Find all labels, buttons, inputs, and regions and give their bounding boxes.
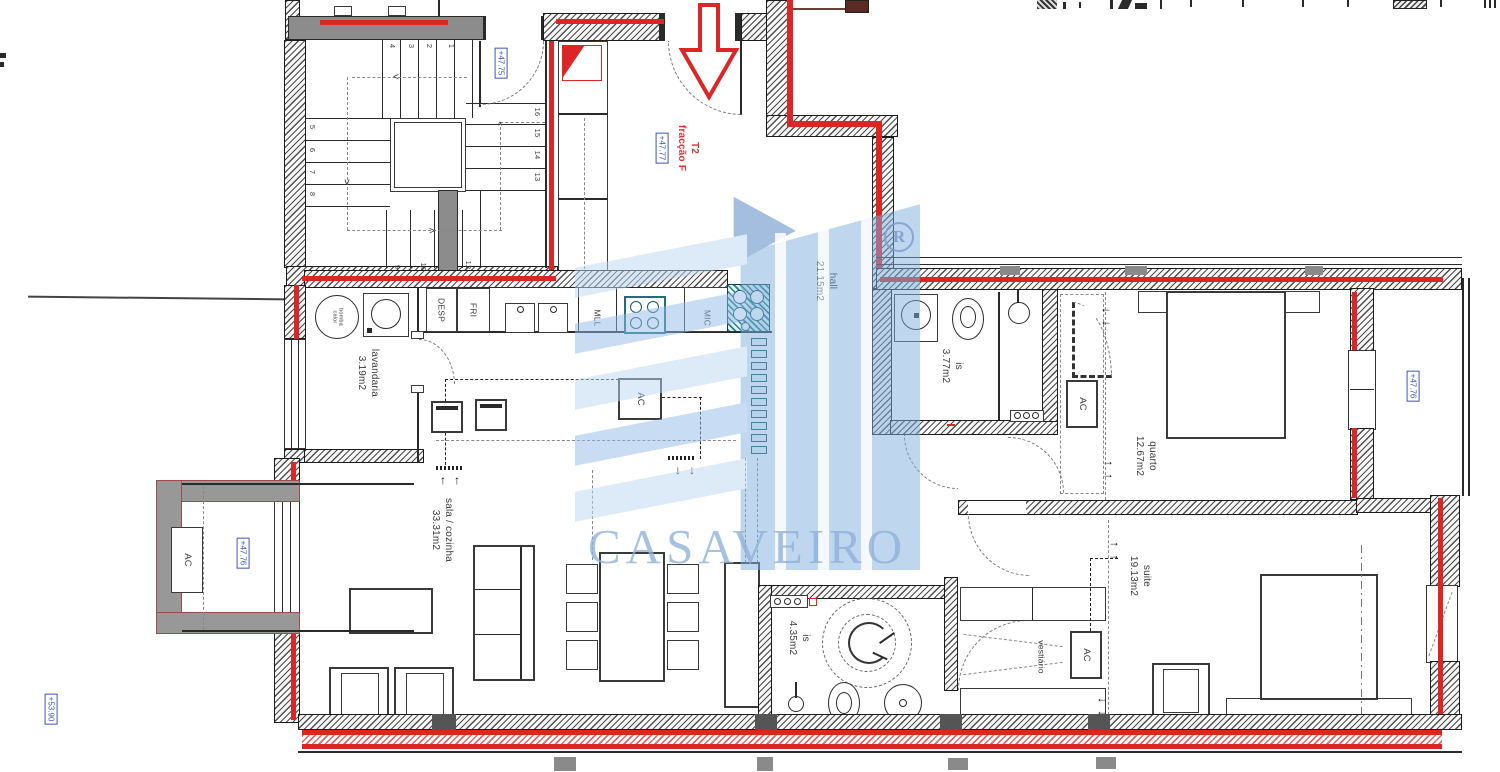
stair-tread bbox=[466, 103, 545, 104]
cut-fragment bbox=[1242, 0, 1244, 7]
shaft-symbol bbox=[562, 45, 602, 81]
sofa bbox=[473, 545, 535, 681]
level-marker: +47.76 bbox=[236, 538, 249, 569]
duct-red bbox=[787, 121, 882, 127]
cabinet-line bbox=[616, 288, 617, 332]
room-label-suite: suite19.13m2 bbox=[1127, 556, 1153, 596]
airflow-arrow-icon: ← bbox=[1100, 302, 1112, 314]
terrace-railing bbox=[1468, 278, 1470, 496]
kitchen-island bbox=[724, 562, 760, 708]
rack-slot bbox=[751, 410, 767, 418]
cut-fragment bbox=[793, 8, 847, 10]
ac-diffuser bbox=[436, 466, 462, 470]
washing-machine-dot bbox=[367, 328, 372, 333]
toilet-bowl-icon bbox=[960, 306, 976, 328]
door-swing-arc bbox=[958, 620, 1028, 690]
duct-red bbox=[291, 626, 296, 720]
step-number: 6 bbox=[307, 148, 317, 152]
stair-tread bbox=[466, 124, 545, 125]
rail-dot-icon bbox=[1032, 412, 1039, 419]
cut-fragment bbox=[1484, 0, 1486, 8]
stair-tread bbox=[306, 140, 390, 141]
duct-red bbox=[880, 277, 1443, 282]
cut-fragment bbox=[1302, 0, 1304, 7]
wall-divider bbox=[417, 390, 419, 463]
cut-fragment bbox=[1494, 0, 1496, 8]
closet-shelf-line bbox=[558, 113, 608, 115]
dishwasher-label: MLL bbox=[591, 309, 602, 326]
closet-shelf-line bbox=[558, 198, 608, 200]
ac-duct-line bbox=[700, 397, 701, 459]
step-number: 7 bbox=[307, 170, 317, 174]
armchair-cushion bbox=[406, 673, 444, 717]
rack-slot bbox=[751, 374, 767, 382]
duct-red bbox=[1352, 428, 1357, 498]
stair-direction-icon: ^ bbox=[498, 122, 503, 132]
dining-chair bbox=[566, 564, 598, 594]
duct-red bbox=[320, 20, 448, 25]
room-label-lavandaria: lavandaria3.19m2 bbox=[355, 349, 381, 397]
wall-tick bbox=[432, 714, 456, 730]
wall-tick bbox=[1088, 714, 1110, 730]
door-swing-arc bbox=[1008, 437, 1064, 493]
wall-tick bbox=[1000, 266, 1020, 275]
stair-tread bbox=[454, 40, 455, 118]
room-label-is1: is3.77m2 bbox=[939, 349, 965, 384]
cut-fragment bbox=[1135, 3, 1147, 9]
rail-dot-icon bbox=[1023, 412, 1030, 419]
step-number: 5 bbox=[307, 125, 317, 129]
cut-fragment bbox=[948, 758, 968, 770]
stair-tread bbox=[436, 40, 437, 118]
cut-fragment bbox=[1160, 0, 1162, 9]
slab-edge-line bbox=[876, 257, 1462, 258]
hob bbox=[624, 296, 666, 334]
stair-landing-inner bbox=[394, 122, 462, 188]
ac-label: AC bbox=[1076, 397, 1088, 411]
door-opening bbox=[968, 501, 1026, 514]
armchair-cushion bbox=[1163, 669, 1199, 713]
stair-direction-icon: > bbox=[429, 227, 435, 237]
dining-chair bbox=[667, 640, 699, 670]
upper-room-line bbox=[438, 0, 440, 16]
wall-stub bbox=[438, 190, 458, 274]
rack-slot bbox=[751, 350, 767, 358]
shaft-triangle-icon bbox=[563, 46, 601, 80]
rack-slot bbox=[751, 398, 767, 406]
room-label-vestiario: vestiário bbox=[1035, 640, 1046, 673]
wall-bath2-right bbox=[944, 577, 958, 691]
duct-red bbox=[302, 744, 1442, 749]
rack-slot bbox=[751, 422, 767, 430]
washing-machine-drum-icon bbox=[371, 299, 401, 329]
cut-fragment bbox=[1096, 757, 1116, 769]
level-marker: +47.76 bbox=[1406, 371, 1419, 402]
ac-label: AC bbox=[181, 553, 193, 567]
duct-red bbox=[1438, 498, 1443, 724]
step-number: 8 bbox=[307, 192, 317, 196]
duct-red bbox=[549, 13, 554, 276]
sink-tap-icon bbox=[517, 306, 524, 313]
level-marker: +47.75 bbox=[494, 48, 507, 79]
duct-red bbox=[787, 0, 793, 121]
rack-slot bbox=[751, 338, 767, 346]
stair-tread bbox=[306, 162, 390, 163]
airflow-arrow-icon: ↑ bbox=[454, 474, 460, 486]
sofa-seat-line bbox=[475, 589, 520, 590]
logo-band bbox=[575, 458, 747, 521]
hob-burner-icon bbox=[647, 301, 659, 313]
level-marker: +53.90 bbox=[44, 694, 57, 725]
ac-diffuser bbox=[668, 456, 696, 460]
ceiling-dash-line bbox=[436, 440, 736, 441]
ac-duct-line bbox=[662, 397, 702, 398]
unit-title-label: T2fracção F bbox=[675, 125, 701, 171]
stair-direction-icon: < bbox=[393, 73, 399, 83]
dining-chair bbox=[667, 602, 699, 632]
stair-tread bbox=[466, 190, 545, 191]
window-mullion bbox=[290, 488, 291, 626]
shelf-divider bbox=[1032, 587, 1033, 621]
duct-red-hatch bbox=[302, 735, 1442, 744]
window-sala bbox=[274, 488, 300, 626]
step-number: 4 bbox=[387, 44, 397, 48]
duct-red-tick bbox=[947, 424, 955, 426]
toilet-bowl-icon bbox=[836, 692, 852, 714]
pantry-label: DESP bbox=[435, 298, 446, 322]
step-number: 1 bbox=[446, 44, 456, 48]
sofa-seat-line bbox=[475, 634, 520, 635]
cut-fragment bbox=[1110, 0, 1113, 9]
step-number: 14 bbox=[532, 151, 542, 160]
duct-red-tick bbox=[809, 598, 817, 606]
airflow-arrow-icon: → bbox=[1108, 536, 1120, 548]
step-number: 3 bbox=[406, 44, 416, 48]
stair-guide-line bbox=[352, 77, 467, 78]
cut-fragment bbox=[1190, 0, 1192, 7]
floorplan-canvas: < v ^ > 1 2 3 4 5 6 7 8 9 10 12 13 14 15… bbox=[0, 0, 1500, 772]
terrace-railing bbox=[1462, 278, 1464, 496]
rack-slot bbox=[751, 362, 767, 370]
upper-room-fixture bbox=[388, 6, 406, 16]
wall-tick bbox=[1305, 266, 1323, 275]
airflow-arrow-icon: ↓ bbox=[689, 464, 695, 476]
duct-red bbox=[1352, 292, 1357, 350]
room-label-hall: hall21.15m2 bbox=[813, 261, 839, 301]
stair-tread bbox=[386, 210, 387, 268]
wall-tick bbox=[1125, 266, 1147, 275]
room-label-quarto: quarto12.67m2 bbox=[1133, 436, 1159, 476]
step-number: 9 bbox=[392, 265, 402, 269]
rack-slot bbox=[751, 434, 767, 442]
door-swing-arc bbox=[904, 435, 958, 489]
cut-fragment bbox=[1489, 0, 1491, 8]
rail-dot-icon bbox=[784, 598, 791, 605]
cut-fragment bbox=[1118, 0, 1132, 9]
stair-tread bbox=[480, 190, 481, 268]
airflow-arrow-icon: → bbox=[1102, 455, 1114, 467]
room-label-is2: is4.35m2 bbox=[786, 621, 812, 656]
stair-tread bbox=[306, 118, 390, 119]
closet-dash-line bbox=[1108, 520, 1109, 720]
cut-fragment bbox=[1079, 2, 1081, 8]
floor-drain-icon bbox=[788, 696, 804, 712]
wall-bath1-bottom bbox=[890, 420, 1058, 435]
duct-red bbox=[556, 19, 664, 24]
cut-fragment bbox=[1393, 0, 1427, 9]
step-number: 13 bbox=[532, 173, 542, 182]
balcony-dash-line bbox=[203, 486, 204, 630]
closet-rail-line bbox=[584, 118, 585, 284]
ac-duct-line bbox=[445, 379, 619, 380]
stove-burner-icon bbox=[750, 307, 764, 321]
hob-burner-icon bbox=[630, 317, 642, 329]
stove-burner-icon bbox=[733, 290, 747, 304]
window-mullion bbox=[282, 488, 283, 626]
cut-fragment bbox=[0, 53, 6, 58]
entrance-arrow-icon bbox=[676, 2, 744, 102]
door-jamb bbox=[411, 385, 424, 393]
basin-drain-dot bbox=[914, 313, 919, 318]
stair-tread bbox=[306, 206, 390, 207]
cut-fragment bbox=[1063, 2, 1066, 9]
level-marker: +47.77 bbox=[655, 133, 668, 164]
step-number: 2 bbox=[424, 44, 434, 48]
rail-dot-icon bbox=[774, 598, 781, 605]
wall-bath1-right bbox=[1042, 289, 1058, 422]
stair-tread bbox=[382, 40, 383, 118]
wall-stair-right-line bbox=[545, 16, 547, 268]
stair-tread bbox=[418, 40, 419, 118]
basin-drain-dot bbox=[899, 699, 907, 707]
sofa-back-line bbox=[520, 547, 522, 679]
door-jamb bbox=[411, 331, 424, 339]
shower-head-icon bbox=[1008, 302, 1030, 324]
rail-dot-icon bbox=[794, 598, 801, 605]
armchair-cushion bbox=[341, 673, 379, 717]
axis-line bbox=[1361, 545, 1362, 720]
door-jamb bbox=[484, 16, 486, 40]
duct-guide-line bbox=[757, 458, 758, 563]
stair-tread bbox=[466, 146, 545, 147]
airflow-arrow-icon: → bbox=[1108, 549, 1120, 561]
stair-direction-icon: v bbox=[345, 178, 350, 188]
stair-tread bbox=[400, 40, 401, 118]
cut-fragment bbox=[845, 0, 869, 13]
balcony-slab-line bbox=[182, 630, 414, 632]
wall-bottom-line bbox=[298, 751, 1462, 753]
fridge-label: FRI bbox=[467, 303, 478, 317]
hob-burner-icon bbox=[630, 301, 642, 313]
window-mullion bbox=[1350, 389, 1374, 390]
logo-stripe bbox=[861, 213, 872, 570]
upper-room-fixture bbox=[334, 6, 352, 16]
sink-tap-icon bbox=[550, 306, 557, 313]
slab-edge-line bbox=[876, 264, 1462, 265]
window-lavandaria bbox=[284, 339, 306, 449]
wall-tick bbox=[940, 714, 962, 730]
ac-label: AC bbox=[634, 392, 646, 406]
wall-tick bbox=[755, 714, 777, 730]
dining-chair bbox=[566, 640, 598, 670]
stair-tread bbox=[462, 210, 463, 268]
ac-label: AC bbox=[1080, 648, 1092, 662]
wall-divider bbox=[417, 287, 419, 335]
stair-tread bbox=[410, 210, 411, 268]
ac-grille-slot bbox=[480, 404, 502, 408]
duct-red bbox=[302, 276, 556, 281]
wall-sala-left bbox=[274, 626, 300, 723]
stove-burner-icon bbox=[741, 322, 750, 331]
dining-table bbox=[599, 552, 665, 682]
cut-fragment bbox=[1440, 0, 1442, 7]
drain-stem bbox=[795, 682, 797, 698]
stair-tread bbox=[434, 210, 435, 268]
ac-grille bbox=[475, 399, 507, 431]
window-quarto bbox=[1348, 350, 1376, 430]
wall-bath1-left bbox=[872, 289, 892, 435]
cabinet-line bbox=[578, 288, 579, 332]
rail-dot-icon bbox=[1014, 412, 1021, 419]
door-swing-arc bbox=[480, 41, 544, 105]
dining-chair bbox=[667, 564, 699, 594]
door-swing-arc bbox=[968, 514, 1030, 576]
duct-red bbox=[294, 285, 299, 339]
ceiling-dash-line bbox=[592, 470, 593, 560]
rack-slot bbox=[751, 446, 767, 454]
property-line bbox=[28, 296, 286, 300]
dining-chair bbox=[566, 602, 598, 632]
ac-grille-slot bbox=[436, 406, 458, 410]
cut-fragment bbox=[1037, 0, 1057, 9]
microwave-label: MIC bbox=[701, 310, 712, 326]
duct-guide-line bbox=[745, 458, 746, 563]
airflow-arrow-icon: ← bbox=[1100, 315, 1112, 327]
shower-partition bbox=[998, 292, 1000, 420]
cut-fragment bbox=[1347, 0, 1349, 7]
stair-guide-line bbox=[347, 230, 502, 231]
rack-slot bbox=[751, 386, 767, 394]
logo-stripe bbox=[775, 233, 786, 570]
coffee-table bbox=[349, 588, 433, 634]
stair-tread bbox=[472, 40, 473, 118]
airflow-arrow-icon: → bbox=[1102, 468, 1114, 480]
vestiario-shelf bbox=[960, 587, 1106, 621]
wall-right bbox=[1430, 495, 1460, 587]
cut-fragment bbox=[0, 62, 4, 67]
stair-guide-line bbox=[500, 122, 501, 230]
window-mullion bbox=[291, 339, 292, 449]
stove-burner-icon bbox=[750, 290, 764, 304]
room-label-sala: sala / cozinha33.31m2 bbox=[429, 498, 455, 562]
step-number: 12 bbox=[463, 261, 473, 270]
wall-bottom bbox=[298, 714, 1462, 730]
ac-duct-line bbox=[1090, 558, 1091, 631]
stove-burner-icon bbox=[733, 307, 747, 321]
stair-guide-line bbox=[347, 77, 348, 230]
door-jamb bbox=[659, 13, 665, 41]
window-mullion bbox=[298, 339, 299, 449]
wall-stair-left bbox=[284, 40, 306, 268]
step-number: 16 bbox=[532, 108, 542, 117]
stair-guide-line bbox=[500, 122, 545, 123]
stair-tread bbox=[466, 168, 545, 169]
airflow-arrow-icon: ↑ bbox=[440, 474, 446, 486]
wall-lavandaria-bottom bbox=[304, 449, 424, 463]
ac-grille bbox=[431, 401, 463, 433]
step-number: 15 bbox=[532, 129, 542, 138]
balcony-slab-line bbox=[182, 483, 414, 485]
airflow-arrow-icon: ↓ bbox=[675, 464, 681, 476]
cut-fragment bbox=[757, 757, 773, 771]
cut-fragment bbox=[554, 757, 576, 771]
bed-quarto bbox=[1166, 291, 1286, 439]
airflow-arrow-icon: ← bbox=[1096, 692, 1108, 704]
hob-burner-icon bbox=[647, 317, 659, 329]
heat-pump-label: bombacalor bbox=[331, 308, 344, 326]
wall-hall-top bbox=[543, 13, 663, 41]
